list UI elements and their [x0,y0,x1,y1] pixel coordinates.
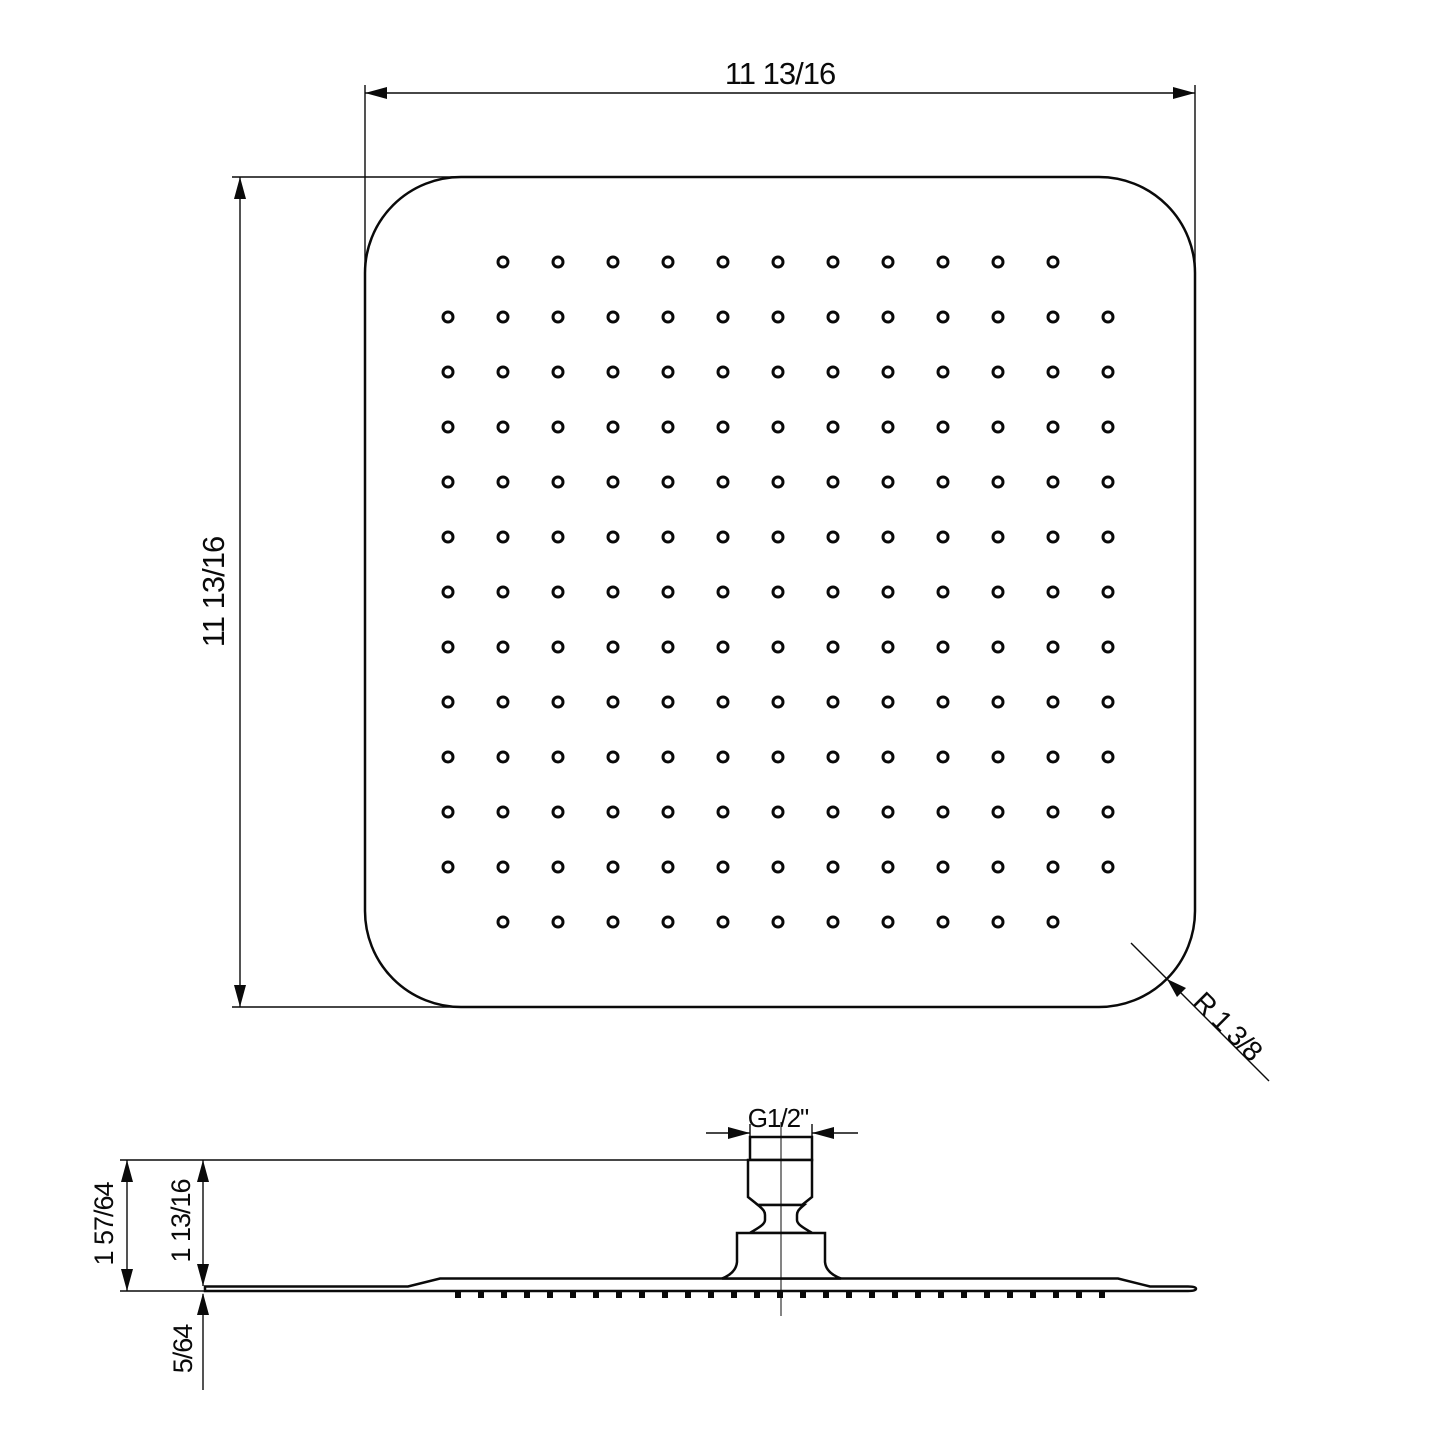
nozzle-hole [663,477,673,487]
nozzle-hole [663,642,673,652]
nozzle-tick [639,1291,645,1298]
dimension-corner-radius: R 1 3/8 [1131,943,1269,1081]
edge-thickness-label: 5/64 [168,1324,198,1374]
nozzle-tick [455,1291,461,1298]
nozzle-hole [498,642,508,652]
nozzle-hole [663,862,673,872]
width-dimension-label: 11 13/16 [725,56,835,91]
head-height-label: 1 13/16 [166,1179,196,1262]
nozzle-hole [773,312,783,322]
nozzle-tick [478,1291,484,1298]
nozzle-hole [663,752,673,762]
nozzle-hole [498,807,508,817]
nozzle-hole [443,642,453,652]
nozzle-hole [828,532,838,542]
nozzle-tick [846,1291,852,1298]
nozzle-hole [883,312,893,322]
nozzle-hole [773,697,783,707]
nozzle-hole [718,422,728,432]
nozzle-hole [718,532,728,542]
total-height-arrow-down-icon [121,1269,133,1291]
nozzle-hole [443,587,453,597]
nozzle-hole [883,477,893,487]
nozzle-hole [1048,312,1058,322]
nozzle-hole [1048,257,1058,267]
technical-drawing: 11 13/16 11 13/16 R 1 3/8 [0,0,1445,1445]
nozzle-tick [1007,1291,1013,1298]
arrowhead-right-icon [1173,87,1195,99]
nozzle-hole [498,532,508,542]
thread-arrow-right-icon [812,1127,834,1139]
nozzle-hole [1048,807,1058,817]
nozzle-hole [1048,862,1058,872]
nozzle-hole [938,532,948,542]
nozzle-hole [828,477,838,487]
nozzle-hole [828,422,838,432]
nozzle-hole [828,367,838,377]
nozzle-hole [938,587,948,597]
nozzle-hole [993,917,1003,927]
dimension-top-width: 11 13/16 [365,56,1195,99]
nozzle-hole [663,917,673,927]
arrowhead-up-icon [234,177,246,199]
nozzle-hole [828,587,838,597]
plate-profile [205,1279,1196,1292]
nozzle-hole [1048,587,1058,597]
nozzle-hole [498,257,508,267]
extension-lines-side-view [120,1124,812,1291]
nozzle-hole [553,697,563,707]
nozzle-hole [773,752,783,762]
nozzle-hole [553,642,563,652]
nozzle-hole [993,862,1003,872]
nozzle-hole [663,532,673,542]
nozzle-hole [553,312,563,322]
nozzle-hole [718,862,728,872]
nozzle-hole [718,697,728,707]
nozzle-hole [1048,697,1058,707]
nozzle-tick [662,1291,668,1298]
nozzle-hole [608,917,618,927]
arrowhead-left-icon [365,87,387,99]
nozzle-hole [773,257,783,267]
nozzle-hole [608,477,618,487]
nozzle-hole [993,587,1003,597]
edge-thickness-arrow-up-icon [197,1293,209,1315]
nozzle-hole [608,422,618,432]
nozzle-tick [892,1291,898,1298]
nozzle-hole [828,862,838,872]
nozzle-hole [883,862,893,872]
nozzle-hole [663,697,673,707]
nozzle-hole [883,257,893,267]
nozzle-hole [1103,477,1113,487]
nozzle-hole [1048,752,1058,762]
nozzle-hole [553,807,563,817]
nozzle-hole [608,752,618,762]
nozzle-hole [1048,422,1058,432]
nozzle-tick [501,1291,507,1298]
thread-arrow-left-icon [728,1127,750,1139]
nozzle-hole [553,257,563,267]
drawing-page: 11 13/16 11 13/16 R 1 3/8 [0,0,1445,1445]
head-height-arrow-up-icon [197,1160,209,1182]
nozzle-hole [993,642,1003,652]
nozzle-hole [498,587,508,597]
nozzle-hole [498,422,508,432]
nozzle-hole [828,807,838,817]
nozzle-hole [498,312,508,322]
nozzle-hole [1103,312,1113,322]
nozzle-hole [1048,367,1058,377]
nozzle-hole [553,862,563,872]
nozzle-hole [1048,477,1058,487]
dimension-head-height: 1 13/16 [166,1160,209,1286]
nozzle-hole [443,422,453,432]
nozzle-hole [718,367,728,377]
nozzle-hole [883,752,893,762]
head-height-arrow-down-icon [197,1264,209,1286]
nozzle-hole [1103,807,1113,817]
nozzle-hole [553,752,563,762]
nozzle-hole [883,697,893,707]
height-dimension-label: 11 13/16 [196,537,231,647]
nozzle-hole [718,587,728,597]
nozzle-hole [773,422,783,432]
nozzle-hole [828,642,838,652]
nozzle-hole [663,807,673,817]
nozzle-hole [993,477,1003,487]
nozzle-hole [718,807,728,817]
nozzle-tick [869,1291,875,1298]
nozzle-hole [443,312,453,322]
nozzle-hole [1103,587,1113,597]
nozzle-hole [718,917,728,927]
nozzle-tick [984,1291,990,1298]
nozzle-tick [616,1291,622,1298]
total-height-label: 1 57/64 [89,1181,119,1265]
nozzle-hole [443,807,453,817]
nozzle-hole [938,312,948,322]
nozzle-hole [993,312,1003,322]
nozzle-hole [938,917,948,927]
nozzle-tick [1099,1291,1105,1298]
nozzle-hole [773,587,783,597]
nozzle-hole [938,752,948,762]
nozzle-tick [961,1291,967,1298]
nozzle-hole [498,367,508,377]
nozzle-hole [718,477,728,487]
nozzle-hole [828,312,838,322]
nozzle-hole [443,862,453,872]
nozzle-tick [547,1291,553,1298]
nozzle-hole [1103,367,1113,377]
nozzle-hole [608,587,618,597]
dimension-total-height: 1 57/64 [89,1160,133,1291]
nozzle-hole [828,257,838,267]
nozzle-tick [1030,1291,1036,1298]
nozzle-tick [570,1291,576,1298]
nozzle-hole [1048,917,1058,927]
nozzle-hole [608,312,618,322]
nozzle-hole [938,257,948,267]
dimension-left-height: 11 13/16 [196,177,246,1007]
nozzle-hole [553,587,563,597]
nozzle-hole [1103,422,1113,432]
nozzle-hole [663,422,673,432]
nozzle-hole [993,807,1003,817]
nozzle-hole [883,642,893,652]
nozzle-hole [443,477,453,487]
nozzle-hole [828,752,838,762]
nozzle-tick [754,1291,760,1298]
nozzle-hole [883,807,893,817]
connector-nut [748,1160,812,1205]
total-height-arrow-up-icon [121,1160,133,1182]
thread-label: G1/2" [748,1103,809,1133]
nozzle-tick [823,1291,829,1298]
nozzle-hole [883,917,893,927]
nozzle-hole [608,862,618,872]
nozzle-hole [993,367,1003,377]
nozzle-hole [718,312,728,322]
nozzle-hole [773,807,783,817]
nozzle-hole [663,257,673,267]
nozzle-hole [828,917,838,927]
nozzle-tick [1076,1291,1082,1298]
side-view: G1/2" 1 57/64 1 13/16 5/64 [89,1103,1196,1390]
corner-radius-label: R 1 3/8 [1187,986,1268,1067]
nozzle-hole [773,532,783,542]
nozzle-hole [938,697,948,707]
nozzle-hole [1103,697,1113,707]
nozzle-hole [608,807,618,817]
dimension-edge-thickness: 5/64 [168,1293,209,1390]
nozzle-hole [718,752,728,762]
nozzle-hole [1048,532,1058,542]
nozzle-hole [773,862,783,872]
nozzle-hole [938,807,948,817]
nozzle-hole [553,422,563,432]
nozzle-hole [608,257,618,267]
nozzle-hole [883,422,893,432]
nozzle-hole [608,642,618,652]
nozzle-hole [1103,532,1113,542]
nozzle-tick [915,1291,921,1298]
nozzle-hole [443,532,453,542]
nozzle-hole [993,422,1003,432]
nozzle-hole [498,862,508,872]
nozzle-hole [718,642,728,652]
nozzle-hole [608,367,618,377]
nozzle-hole [773,477,783,487]
nozzle-hole [663,587,673,597]
nozzle-tick-row [455,1291,1105,1298]
nozzle-hole [553,532,563,542]
nozzle-hole [883,367,893,377]
nozzle-hole [993,532,1003,542]
nozzle-hole [1103,862,1113,872]
nozzle-hole [553,477,563,487]
nozzle-hole [1048,642,1058,652]
dimension-thread: G1/2" [706,1103,858,1139]
nozzle-tick [1053,1291,1059,1298]
nozzle-hole [993,257,1003,267]
nozzle-hole [498,697,508,707]
nozzle-hole [443,752,453,762]
nozzle-hole [938,367,948,377]
nozzle-hole [608,532,618,542]
nozzle-tick [938,1291,944,1298]
nozzle-tick [800,1291,806,1298]
nozzle-hole [938,422,948,432]
nozzle-hole [663,312,673,322]
nozzle-hole [773,642,783,652]
nozzle-hole [828,697,838,707]
nozzle-tick [593,1291,599,1298]
nozzle-hole [993,752,1003,762]
nozzle-hole [608,697,618,707]
nozzle-hole [663,367,673,377]
nozzle-tick [708,1291,714,1298]
nozzle-hole [938,642,948,652]
nozzle-hole [553,917,563,927]
nozzle-hole [443,367,453,377]
nozzle-hole [718,257,728,267]
nozzle-hole [938,477,948,487]
nozzle-hole [883,532,893,542]
arrowhead-down-icon [234,985,246,1007]
nozzle-hole [498,752,508,762]
nozzle-hole [498,917,508,927]
nozzle-tick [685,1291,691,1298]
nozzle-hole [1103,642,1113,652]
top-view: 11 13/16 11 13/16 R 1 3/8 [196,56,1269,1081]
nozzle-hole [938,862,948,872]
nozzle-hole [993,697,1003,707]
nozzle-hole [883,587,893,597]
nozzle-hole [498,477,508,487]
nozzle-hole [443,697,453,707]
nozzle-hole [773,917,783,927]
nozzle-tick [524,1291,530,1298]
nozzle-hole [553,367,563,377]
nozzle-tick [777,1291,783,1298]
nozzle-hole [773,367,783,377]
nozzle-hole [1103,752,1113,762]
nozzle-tick [731,1291,737,1298]
